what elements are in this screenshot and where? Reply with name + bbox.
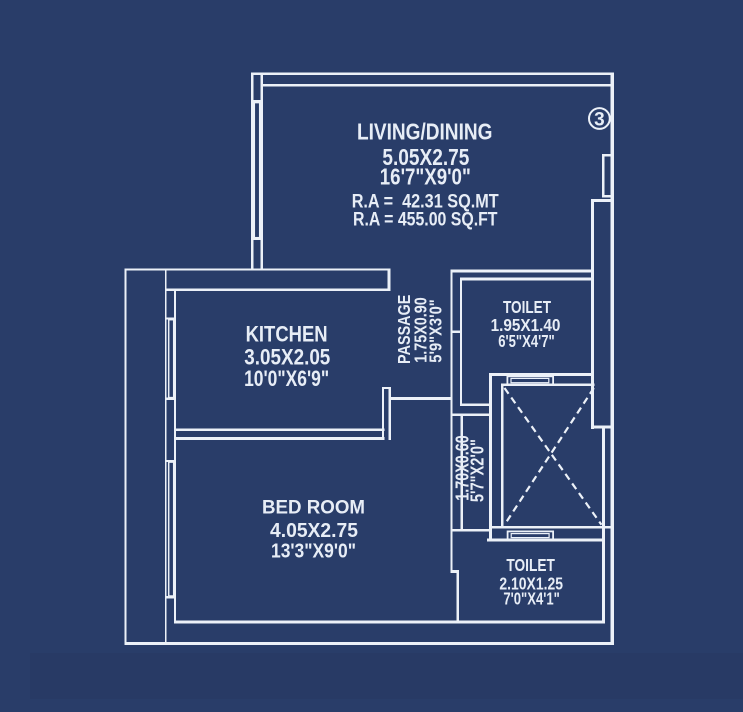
svg-text:6'5"X4'7": 6'5"X4'7" xyxy=(498,331,555,351)
svg-text:R.A = 455.00 SQ.FT: R.A = 455.00 SQ.FT xyxy=(353,208,498,230)
svg-text:4.05X2.75: 4.05X2.75 xyxy=(270,520,358,542)
svg-text:KITCHEN: KITCHEN xyxy=(246,322,328,347)
svg-text:5'7"X2'0": 5'7"X2'0" xyxy=(467,439,487,502)
svg-text:13'3"X9'0": 13'3"X9'0" xyxy=(271,541,356,563)
svg-text:TOILET: TOILET xyxy=(506,555,555,575)
svg-text:LIVING/DINING: LIVING/DINING xyxy=(357,118,493,144)
svg-text:BED ROOM: BED ROOM xyxy=(262,497,365,518)
svg-text:7'0"X4'1": 7'0"X4'1" xyxy=(503,589,560,609)
svg-text:3: 3 xyxy=(594,109,605,130)
svg-text:10'0"X6'9": 10'0"X6'9" xyxy=(244,366,329,391)
svg-text:5'9"X3'0": 5'9"X3'0" xyxy=(425,299,445,362)
svg-text:16'7"X9'0": 16'7"X9'0" xyxy=(380,163,471,189)
